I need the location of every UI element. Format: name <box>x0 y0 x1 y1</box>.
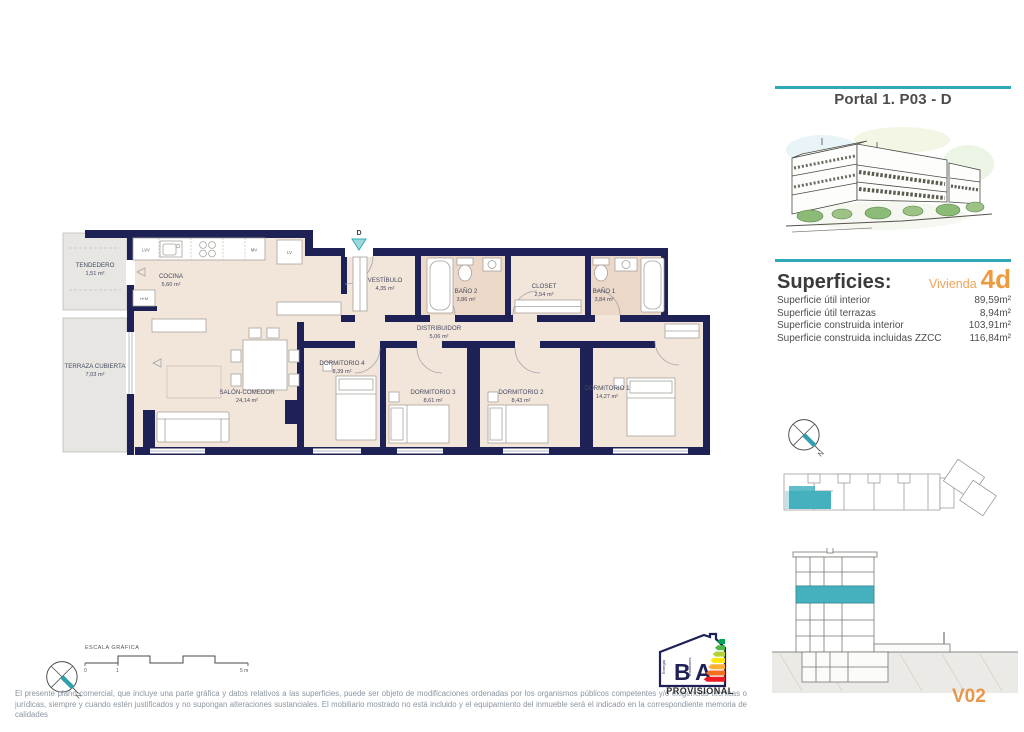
svg-text:24,14 m²: 24,14 m² <box>236 398 258 404</box>
toilet <box>593 258 609 265</box>
superficies-row: Superficie construida interior 103,91m² <box>777 320 1011 333</box>
washbasin <box>483 258 501 271</box>
compass-icon: N <box>780 412 830 462</box>
highlighted-floor <box>796 586 874 603</box>
svg-text:8,39 m²: 8,39 m² <box>333 369 352 375</box>
building-section <box>772 548 1018 693</box>
superficies-row: Superficie útil terrazas 8,94m² <box>777 308 1011 321</box>
toilet <box>457 258 473 265</box>
dishwasher-label: LVV <box>142 248 150 253</box>
scale-title: ESCALA GRÁFICA <box>85 644 139 651</box>
svg-text:5,06 m²: 5,06 m² <box>430 334 449 340</box>
site-key-plan <box>778 458 1018 522</box>
washer-label: LV <box>287 250 292 255</box>
tv-bench <box>152 319 206 332</box>
svg-text:VESTÍBULO: VESTÍBULO <box>368 277 403 284</box>
svg-text:BAÑO 2: BAÑO 2 <box>455 288 478 295</box>
svg-text:8,43 m²: 8,43 m² <box>512 398 531 404</box>
sup-label: Superficie construida incluidas ZZCC <box>777 333 942 346</box>
svg-text:DORMITORIO 1: DORMITORIO 1 <box>584 385 630 392</box>
sup-label: Superficie útil terrazas <box>777 308 876 321</box>
svg-text:DORMITORIO 2: DORMITORIO 2 <box>498 389 544 396</box>
svg-text:2,54 m²: 2,54 m² <box>535 292 554 298</box>
vivienda-tag: Vivienda4d <box>929 264 1011 295</box>
svg-text:DISTRIBUIDOR: DISTRIBUIDOR <box>417 325 462 332</box>
svg-text:TERRAZA CUBIERTA: TERRAZA CUBIERTA <box>65 363 127 370</box>
superficies-block: Superficies: Vivienda4d Superficie útil … <box>777 264 1011 345</box>
building-illustration <box>782 118 997 236</box>
floor-plan: D LVV MV LV H+M <box>55 220 720 465</box>
energy-status: PROVISIONAL <box>650 686 750 696</box>
svg-text:BAÑO 1: BAÑO 1 <box>593 288 616 295</box>
svg-text:8,61 m²: 8,61 m² <box>424 398 443 404</box>
energy-axis-label: Energía <box>661 659 666 674</box>
svg-text:7,03 m²: 7,03 m² <box>86 372 105 378</box>
bathtub <box>427 258 453 313</box>
sup-value: 103,91m² <box>969 320 1011 333</box>
hall-wardrobe <box>353 257 367 311</box>
sup-value: 8,94m² <box>980 308 1011 321</box>
dining-table <box>243 340 287 390</box>
sheet-code: V02 <box>952 686 986 708</box>
tendedero-door <box>126 260 135 285</box>
microwave-label: MV <box>251 248 257 253</box>
pillow <box>630 381 672 393</box>
svg-text:3,84 m²: 3,84 m² <box>595 297 614 303</box>
sup-label: Superficie útil interior <box>777 295 870 308</box>
pillow <box>490 408 502 440</box>
nightstand <box>488 392 498 402</box>
superficies-title: Superficies: <box>777 271 891 294</box>
page-title: Portal 1. P03 - D <box>775 91 1011 108</box>
svg-text:DORMITORIO 4: DORMITORIO 4 <box>319 360 365 367</box>
scale-bar-line <box>85 656 248 663</box>
energy-rating-label: Energía B Emisiones A <box>652 630 747 688</box>
scale-tick-0: 0 <box>84 668 87 674</box>
pillow <box>391 408 403 440</box>
vivienda-label: Vivienda <box>929 277 977 291</box>
scale-tick-1: 1 <box>116 668 119 674</box>
terraza-area <box>63 318 127 452</box>
svg-text:COCINA: COCINA <box>159 273 184 280</box>
superficies-row: Superficie útil interior 89,59m² <box>777 295 1011 308</box>
sup-value: 89,59m² <box>974 295 1011 308</box>
svg-text:5,60 m²: 5,60 m² <box>162 282 181 288</box>
oven-label: H+M <box>140 297 148 301</box>
svg-text:14,27 m²: 14,27 m² <box>596 394 618 400</box>
legal-disclaimer: El presente plano comercial, que incluye… <box>15 689 747 721</box>
pillow <box>339 379 373 390</box>
kitchen-peninsula <box>277 302 341 315</box>
entrance-label: D <box>356 230 361 237</box>
scale-tick-5: 5 m <box>240 668 248 674</box>
header-rule <box>775 86 1011 89</box>
terrace-slider <box>126 332 135 394</box>
sofa <box>157 412 229 442</box>
sup-label: Superficie construida interior <box>777 320 904 333</box>
svg-text:DORMITORIO 3: DORMITORIO 3 <box>410 389 456 396</box>
svg-text:3,86 m²: 3,86 m² <box>457 297 476 303</box>
washbasin <box>615 258 637 271</box>
svg-text:CLOSET: CLOSET <box>532 283 557 290</box>
svg-text:1,51 m²: 1,51 m² <box>86 271 105 277</box>
superficies-row: Superficie construida incluidas ZZCC 116… <box>777 333 1011 346</box>
svg-text:4,35 m²: 4,35 m² <box>376 286 395 292</box>
superficies-rule <box>775 259 1011 262</box>
svg-text:TENDEDERO: TENDEDERO <box>76 262 115 269</box>
plan-sheet: { "colors": { "teal": "#2fa9b7", "orange… <box>0 0 1024 732</box>
nightstand <box>389 392 399 402</box>
closet-fittings <box>515 300 581 313</box>
svg-text:SALÓN-COMEDOR: SALÓN-COMEDOR <box>219 389 275 396</box>
scale-bar: ESCALA GRÁFICA 0 1 5 m <box>80 642 260 674</box>
sup-value: 116,84m² <box>969 333 1011 346</box>
vivienda-code: 4d <box>981 264 1011 294</box>
emissions-axis-label: Emisiones <box>687 658 692 676</box>
